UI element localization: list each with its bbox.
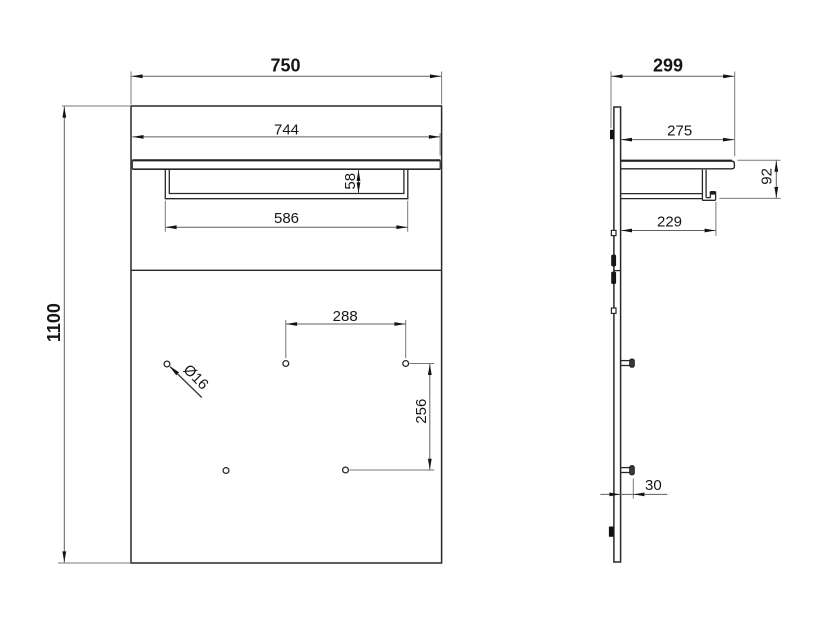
svg-text:288: 288 bbox=[333, 308, 358, 325]
svg-text:744: 744 bbox=[274, 121, 299, 138]
svg-text:92: 92 bbox=[759, 168, 776, 185]
svg-text:586: 586 bbox=[274, 210, 299, 227]
svg-text:229: 229 bbox=[657, 214, 682, 231]
svg-text:1100: 1100 bbox=[44, 303, 64, 342]
svg-text:275: 275 bbox=[667, 122, 692, 139]
svg-text:299: 299 bbox=[653, 55, 683, 75]
svg-text:256: 256 bbox=[413, 399, 430, 424]
svg-text:750: 750 bbox=[270, 55, 300, 75]
svg-text:30: 30 bbox=[645, 477, 662, 494]
svg-text:58: 58 bbox=[342, 173, 359, 190]
